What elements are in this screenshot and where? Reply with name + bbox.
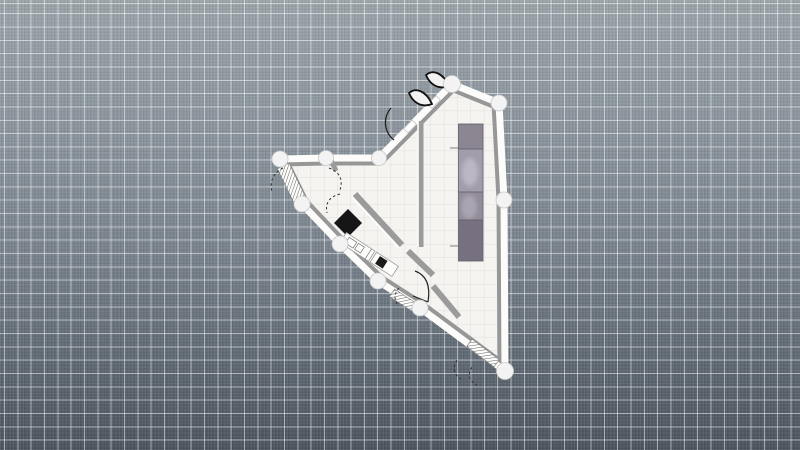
wardrobe-segment [459, 220, 483, 261]
wardrobe-highlight [461, 195, 477, 219]
wall-node[interactable] [294, 196, 310, 212]
door-swing-dashed [454, 360, 461, 379]
wall-node[interactable] [497, 363, 514, 380]
wall-node[interactable] [370, 273, 386, 289]
door-swing-dashed [469, 367, 477, 385]
door-swing-arc[interactable] [385, 108, 394, 140]
floor-plan [0, 0, 800, 450]
wall-node[interactable] [444, 76, 461, 93]
wall-node[interactable] [491, 95, 507, 111]
wall-node[interactable] [272, 151, 288, 167]
wall-node[interactable] [332, 236, 348, 252]
wardrobe-highlight [462, 158, 478, 186]
wall-node[interactable] [319, 151, 334, 166]
wall-node[interactable] [372, 151, 387, 166]
floor-plan-editor-canvas[interactable] [0, 0, 800, 450]
wall-node[interactable] [496, 192, 512, 208]
wall-node[interactable] [412, 300, 428, 316]
door-leaf[interactable] [409, 90, 432, 105]
